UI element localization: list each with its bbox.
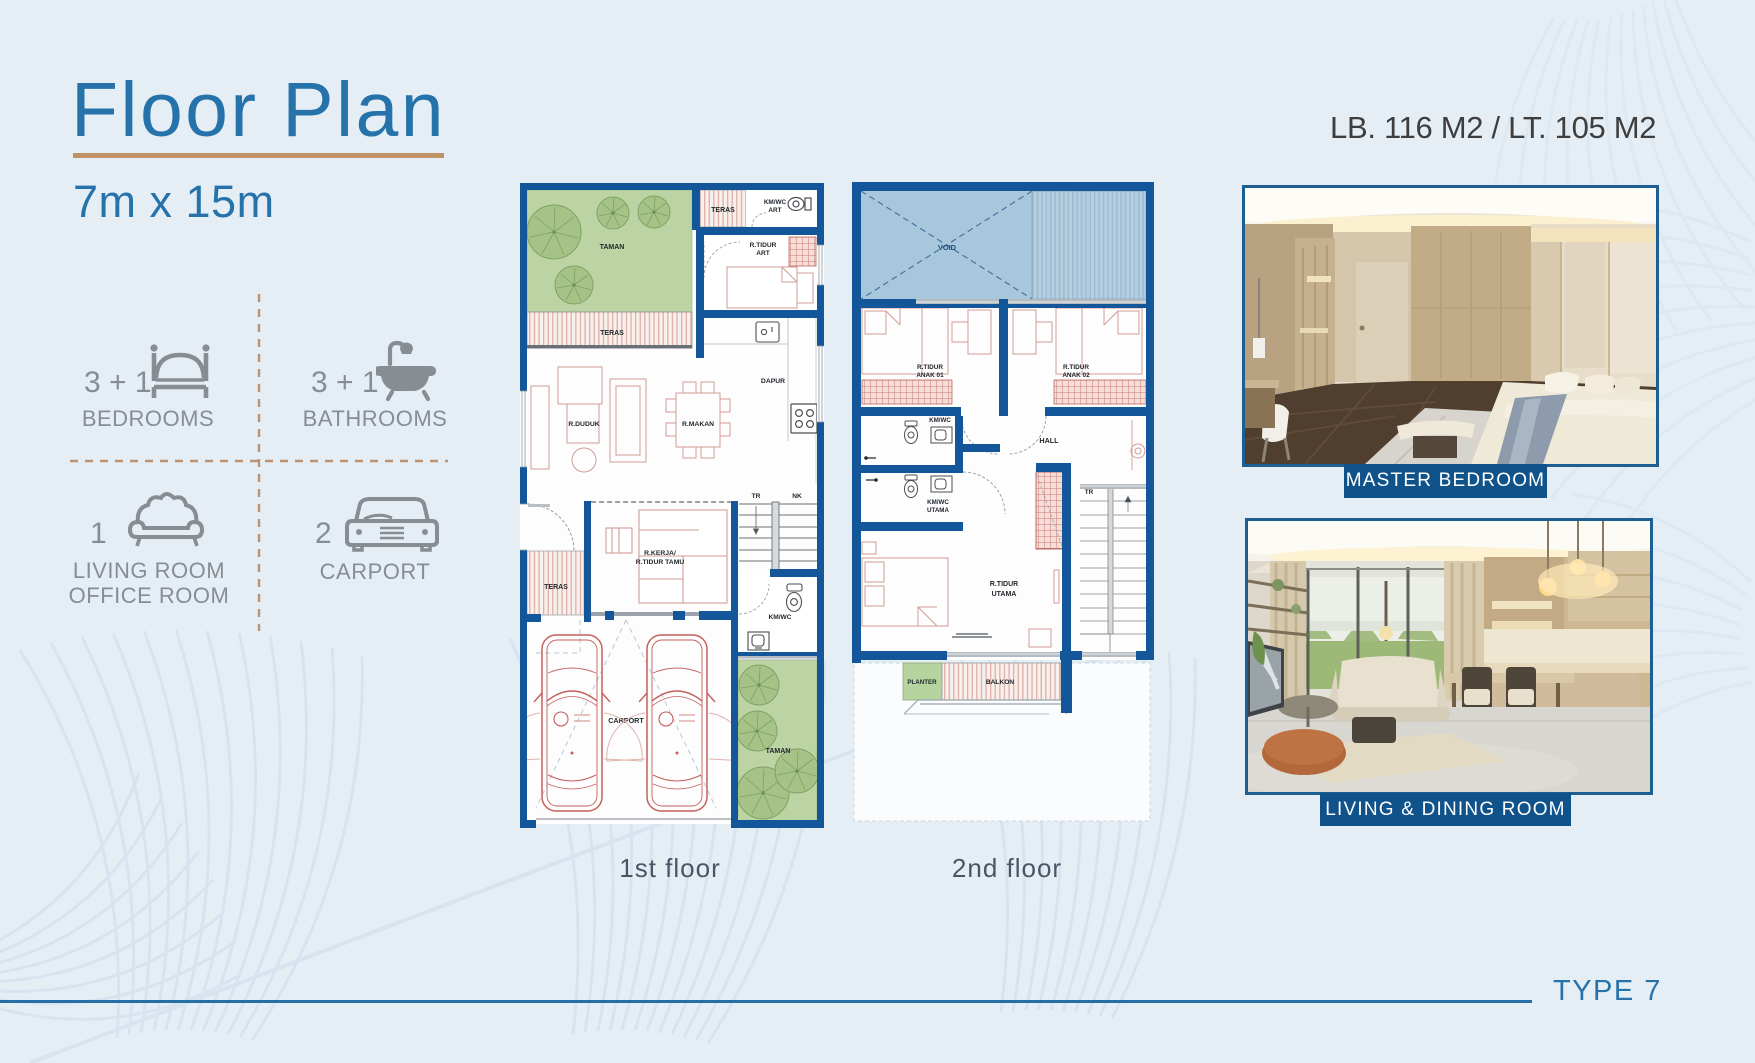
svg-text:TR: TR <box>752 493 761 500</box>
svg-text:KM/WC: KM/WC <box>927 499 949 506</box>
svg-text:PLANTER: PLANTER <box>907 679 937 686</box>
svg-text:KM/WC: KM/WC <box>764 199 787 206</box>
svg-text:TERAS: TERAS <box>711 207 735 214</box>
svg-text:BALKON: BALKON <box>986 679 1014 686</box>
svg-text:DAPUR: DAPUR <box>761 378 785 385</box>
svg-text:R.TIDUR TAMU: R.TIDUR TAMU <box>636 559 685 566</box>
svg-text:TAMAN: TAMAN <box>766 748 791 755</box>
svg-text:UTAMA: UTAMA <box>927 507 949 514</box>
svg-text:ART: ART <box>768 207 781 214</box>
svg-text:KM/WC: KM/WC <box>768 614 791 621</box>
svg-text:NK: NK <box>792 493 802 500</box>
svg-text:R.DUDUK: R.DUDUK <box>568 421 599 428</box>
svg-text:R.TIDUR: R.TIDUR <box>750 242 777 249</box>
svg-text:VOID: VOID <box>938 243 957 252</box>
svg-text:R.TIDUR: R.TIDUR <box>990 581 1018 588</box>
svg-text:R.KERJA/: R.KERJA/ <box>644 550 676 557</box>
svg-text:ANAK 01: ANAK 01 <box>916 372 944 379</box>
svg-text:KM/WC: KM/WC <box>929 417 951 424</box>
svg-text:TERAS: TERAS <box>544 584 568 591</box>
svg-text:HALL: HALL <box>1039 436 1059 445</box>
svg-text:UTAMA: UTAMA <box>992 591 1017 598</box>
svg-text:TERAS: TERAS <box>600 330 624 337</box>
svg-text:R.MAKAN: R.MAKAN <box>682 421 714 428</box>
svg-text:TR: TR <box>1085 489 1094 496</box>
svg-text:R.TIDUR: R.TIDUR <box>917 364 943 371</box>
svg-text:TAMAN: TAMAN <box>600 244 625 251</box>
svg-text:R.TIDUR: R.TIDUR <box>1063 364 1089 371</box>
svg-text:ANAK 02: ANAK 02 <box>1062 372 1090 379</box>
svg-text:ART: ART <box>756 250 770 257</box>
